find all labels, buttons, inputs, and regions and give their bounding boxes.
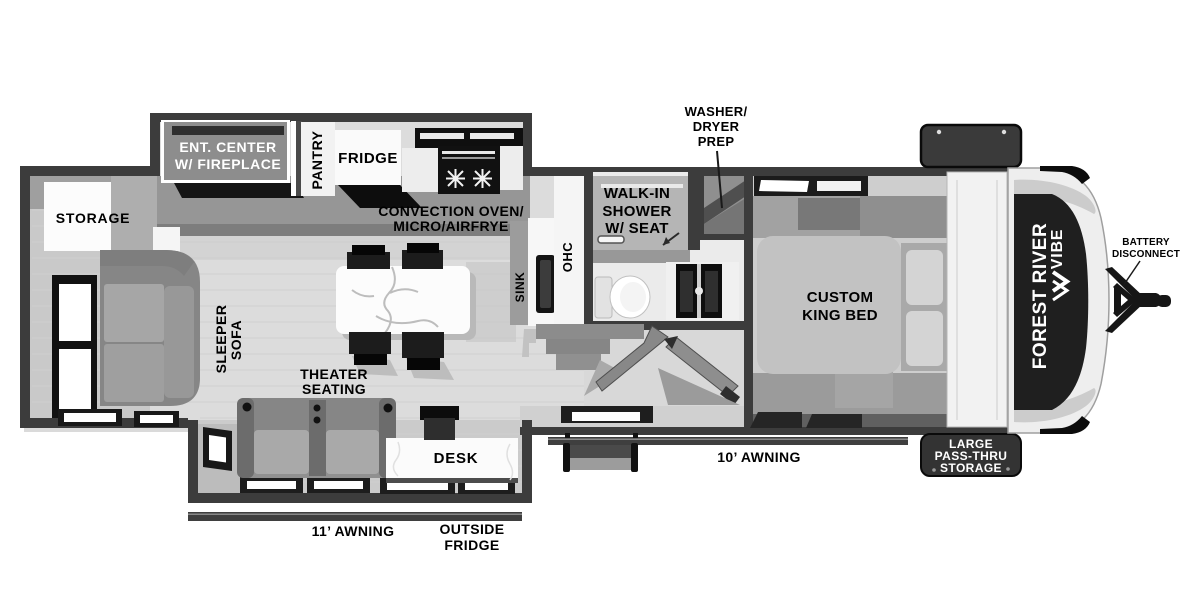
svg-text:THEATER: THEATER: [300, 366, 368, 382]
svg-text:MICRO/AIRFRYE: MICRO/AIRFRYE: [393, 218, 508, 234]
svg-text:11’ AWNING: 11’ AWNING: [312, 523, 395, 539]
svg-text:W/ FIREPLACE: W/ FIREPLACE: [175, 156, 281, 172]
svg-text:FRIDGE: FRIDGE: [444, 537, 499, 553]
svg-text:FOREST RIVER: FOREST RIVER: [1030, 223, 1051, 369]
svg-text:DESK: DESK: [434, 450, 479, 467]
svg-text:WASHER/: WASHER/: [685, 104, 748, 119]
svg-text:SEATING: SEATING: [302, 381, 366, 397]
svg-text:SOFA: SOFA: [228, 320, 244, 360]
svg-text:STORAGE: STORAGE: [56, 210, 131, 226]
svg-text:CONVECTION OVEN/: CONVECTION OVEN/: [378, 203, 524, 219]
svg-text:SINK: SINK: [513, 272, 527, 303]
svg-text:WALK-IN: WALK-IN: [604, 185, 670, 202]
svg-text:BATTERY: BATTERY: [1122, 237, 1170, 248]
svg-text:PREP: PREP: [698, 134, 735, 149]
svg-text:DISCONNECT: DISCONNECT: [1112, 249, 1180, 260]
svg-text:PANTRY: PANTRY: [309, 130, 325, 189]
svg-text:CUSTOM: CUSTOM: [807, 289, 874, 306]
svg-text:SHOWER: SHOWER: [602, 203, 671, 220]
svg-text:SLEEPER: SLEEPER: [213, 305, 229, 374]
svg-text:ENT. CENTER: ENT. CENTER: [179, 139, 276, 155]
svg-text:10’ AWNING: 10’ AWNING: [717, 449, 801, 465]
svg-text:KING BED: KING BED: [802, 307, 878, 324]
svg-text:FRIDGE: FRIDGE: [338, 150, 398, 167]
svg-text:OHC: OHC: [560, 242, 575, 273]
svg-text:OUTSIDE: OUTSIDE: [439, 521, 504, 537]
svg-text:DRYER: DRYER: [693, 119, 740, 134]
svg-text:VIBE: VIBE: [1049, 229, 1066, 270]
svg-text:STORAGE: STORAGE: [940, 461, 1002, 475]
svg-text:W/ SEAT: W/ SEAT: [605, 220, 668, 237]
